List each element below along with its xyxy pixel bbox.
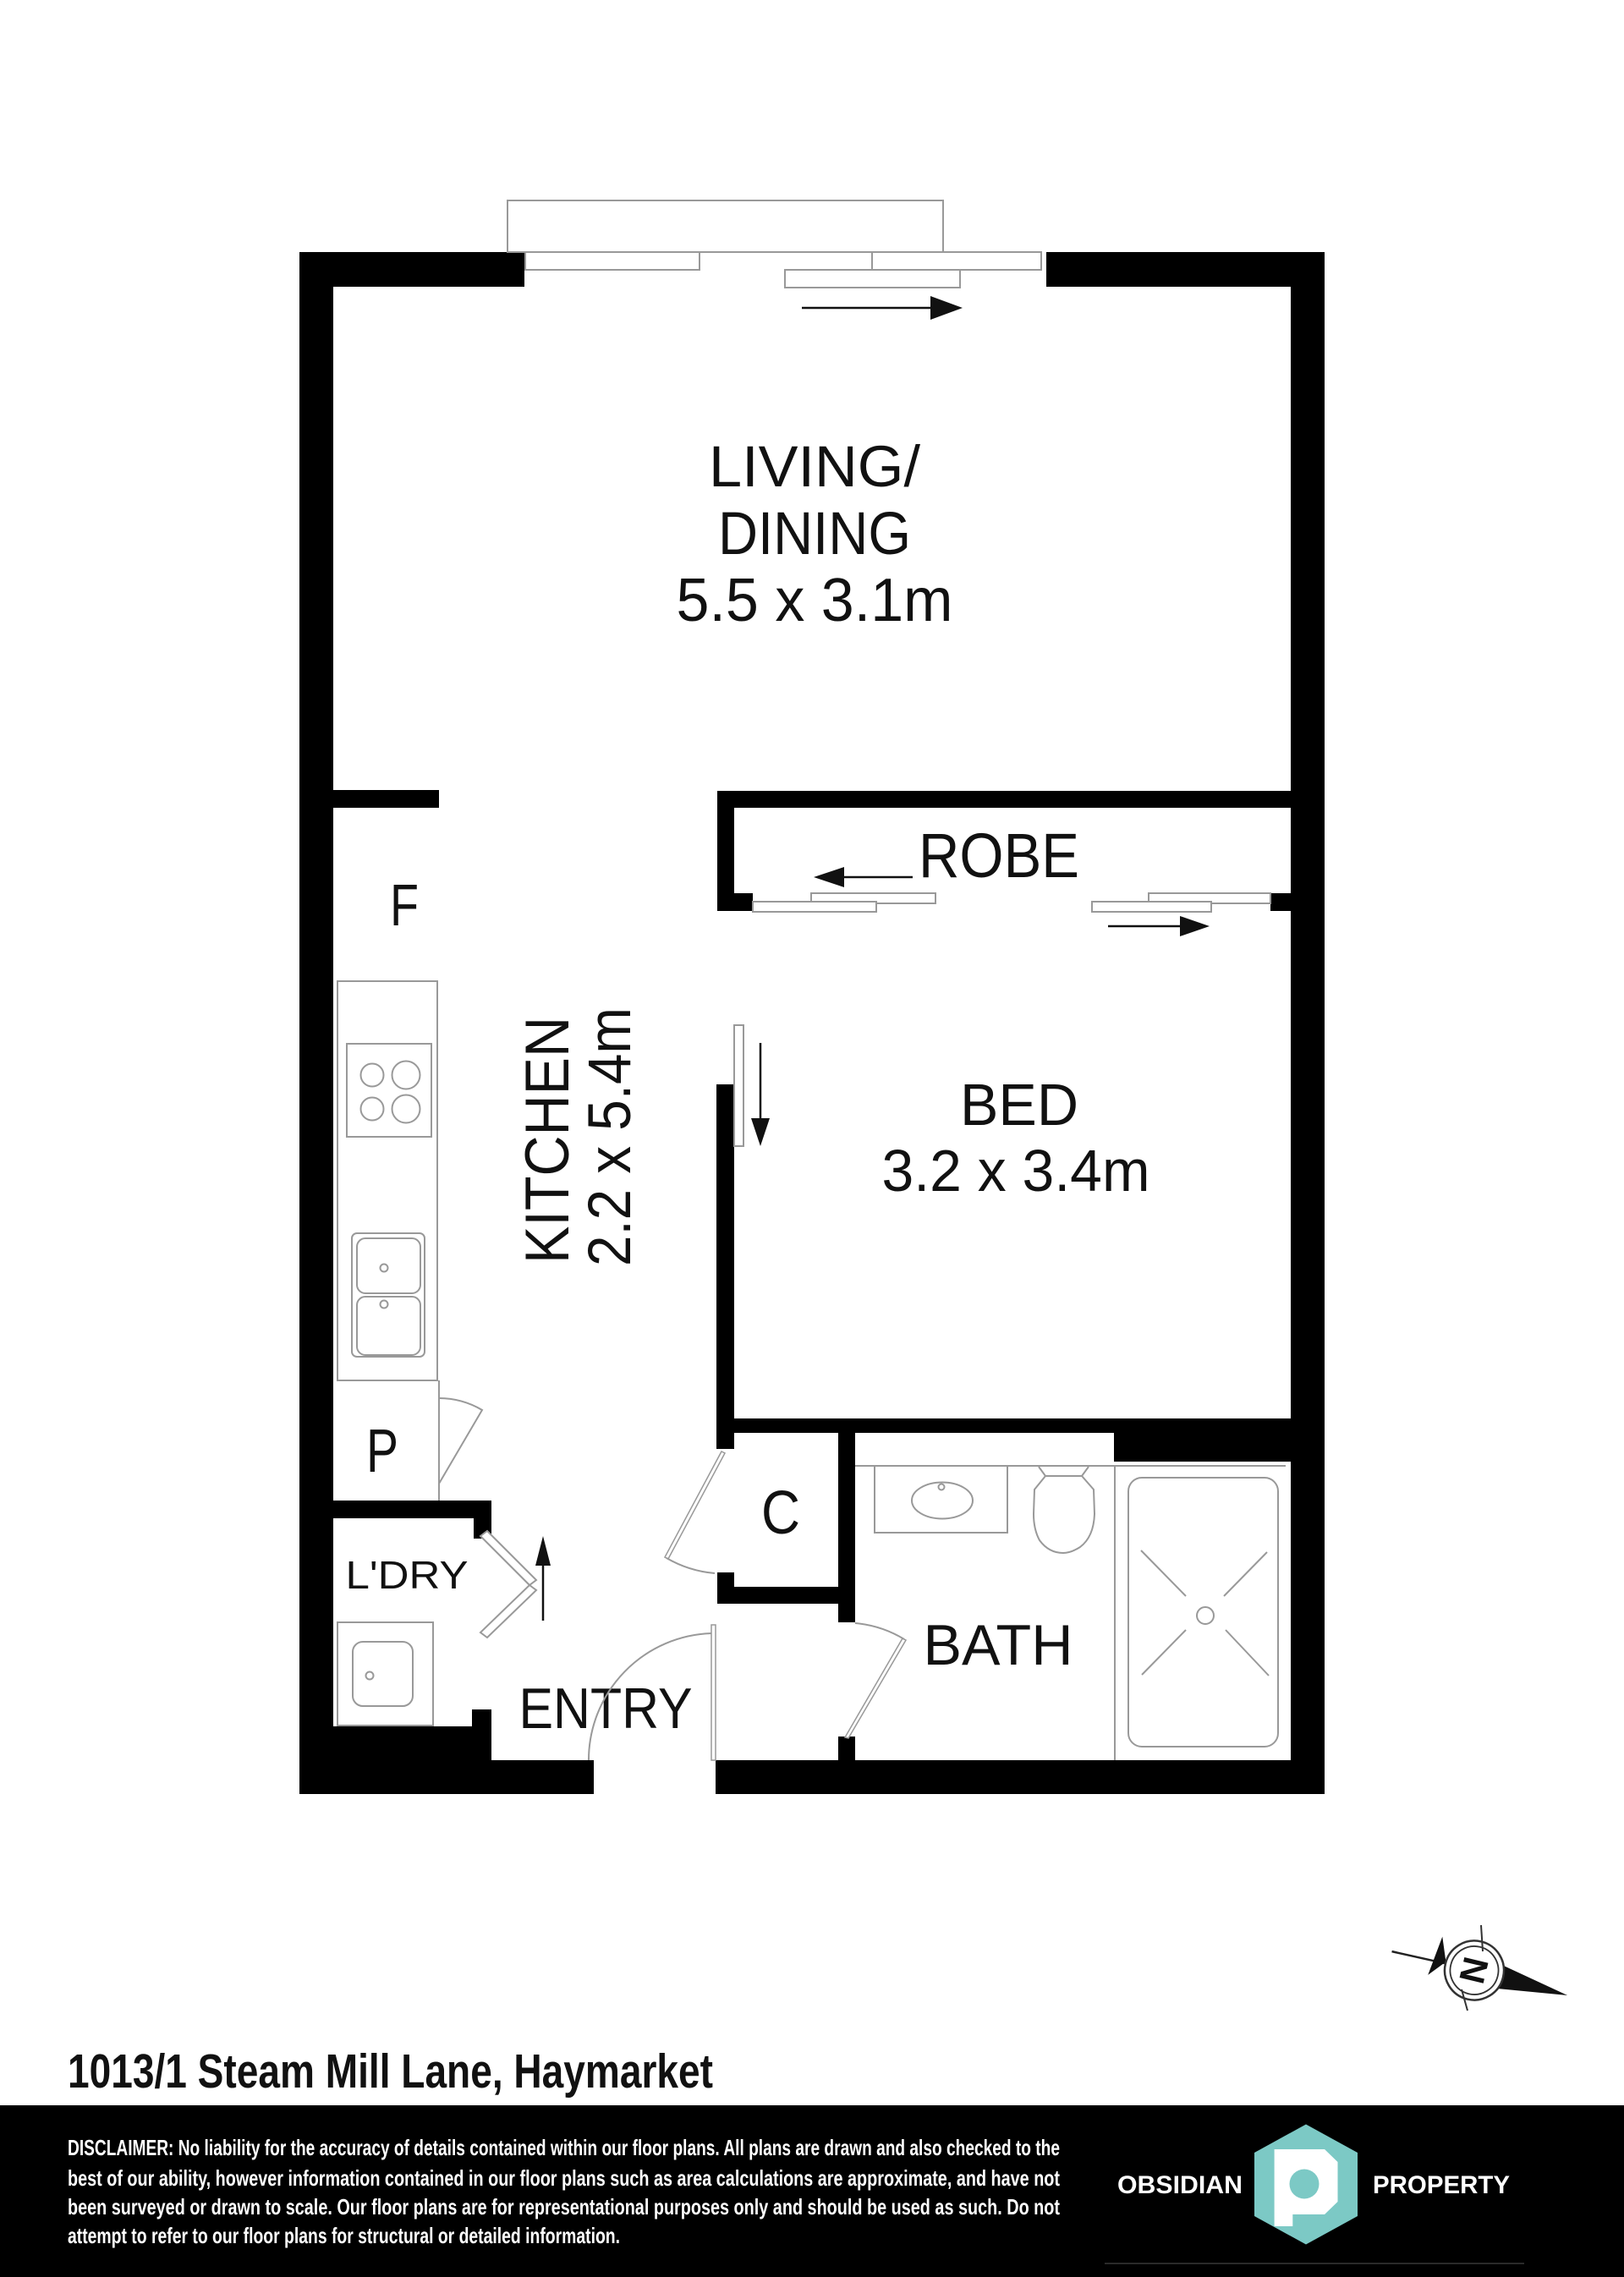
svg-text:P: P (366, 1418, 398, 1485)
svg-text:3.2 x 3.4m: 3.2 x 3.4m (882, 1138, 1150, 1204)
svg-text:BATH: BATH (924, 1613, 1073, 1677)
svg-text:DISCLAIMER: No liability for t: DISCLAIMER: No liability for the accurac… (68, 2135, 1060, 2160)
svg-text:2.2 x 5.4m: 2.2 x 5.4m (577, 1007, 644, 1266)
svg-text:ENTRY: ENTRY (519, 1676, 693, 1741)
svg-text:L'DRY: L'DRY (346, 1553, 469, 1597)
svg-text:PROPERTY: PROPERTY (1373, 2171, 1510, 2199)
svg-text:LIVING/: LIVING/ (709, 434, 921, 499)
svg-text:C: C (761, 1479, 800, 1547)
svg-text:been surveyed or drawn to scal: been surveyed or drawn to scale. Our flo… (68, 2194, 1060, 2219)
svg-text:DINING: DINING (718, 501, 911, 568)
svg-text:F: F (390, 872, 419, 938)
svg-text:ROBE: ROBE (919, 820, 1079, 891)
svg-text:5.5 x 3.1m: 5.5 x 3.1m (677, 567, 953, 634)
svg-text:OBSIDIAN: OBSIDIAN (1117, 2171, 1243, 2199)
svg-text:KITCHEN: KITCHEN (513, 1017, 582, 1264)
svg-text:BED: BED (960, 1072, 1078, 1138)
svg-text:1013/1 Steam Mill Lane, Haymar: 1013/1 Steam Mill Lane, Haymarket (68, 2044, 713, 2099)
svg-text:attempt to refer to our floor: attempt to refer to our floor plans for … (68, 2223, 620, 2248)
svg-text:best of our ability, however i: best of our ability, however information… (68, 2165, 1060, 2191)
